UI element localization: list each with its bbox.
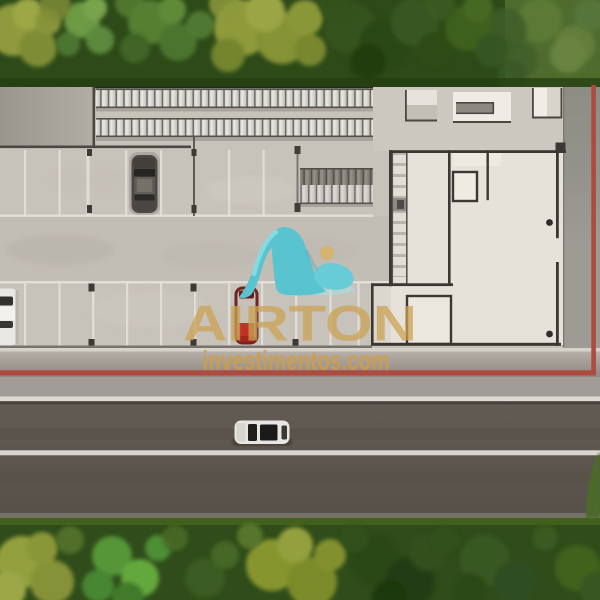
svg-text:AIRTON: AIRTON	[183, 296, 417, 352]
svg-text:investimentos.com: investimentos.com	[203, 346, 390, 376]
